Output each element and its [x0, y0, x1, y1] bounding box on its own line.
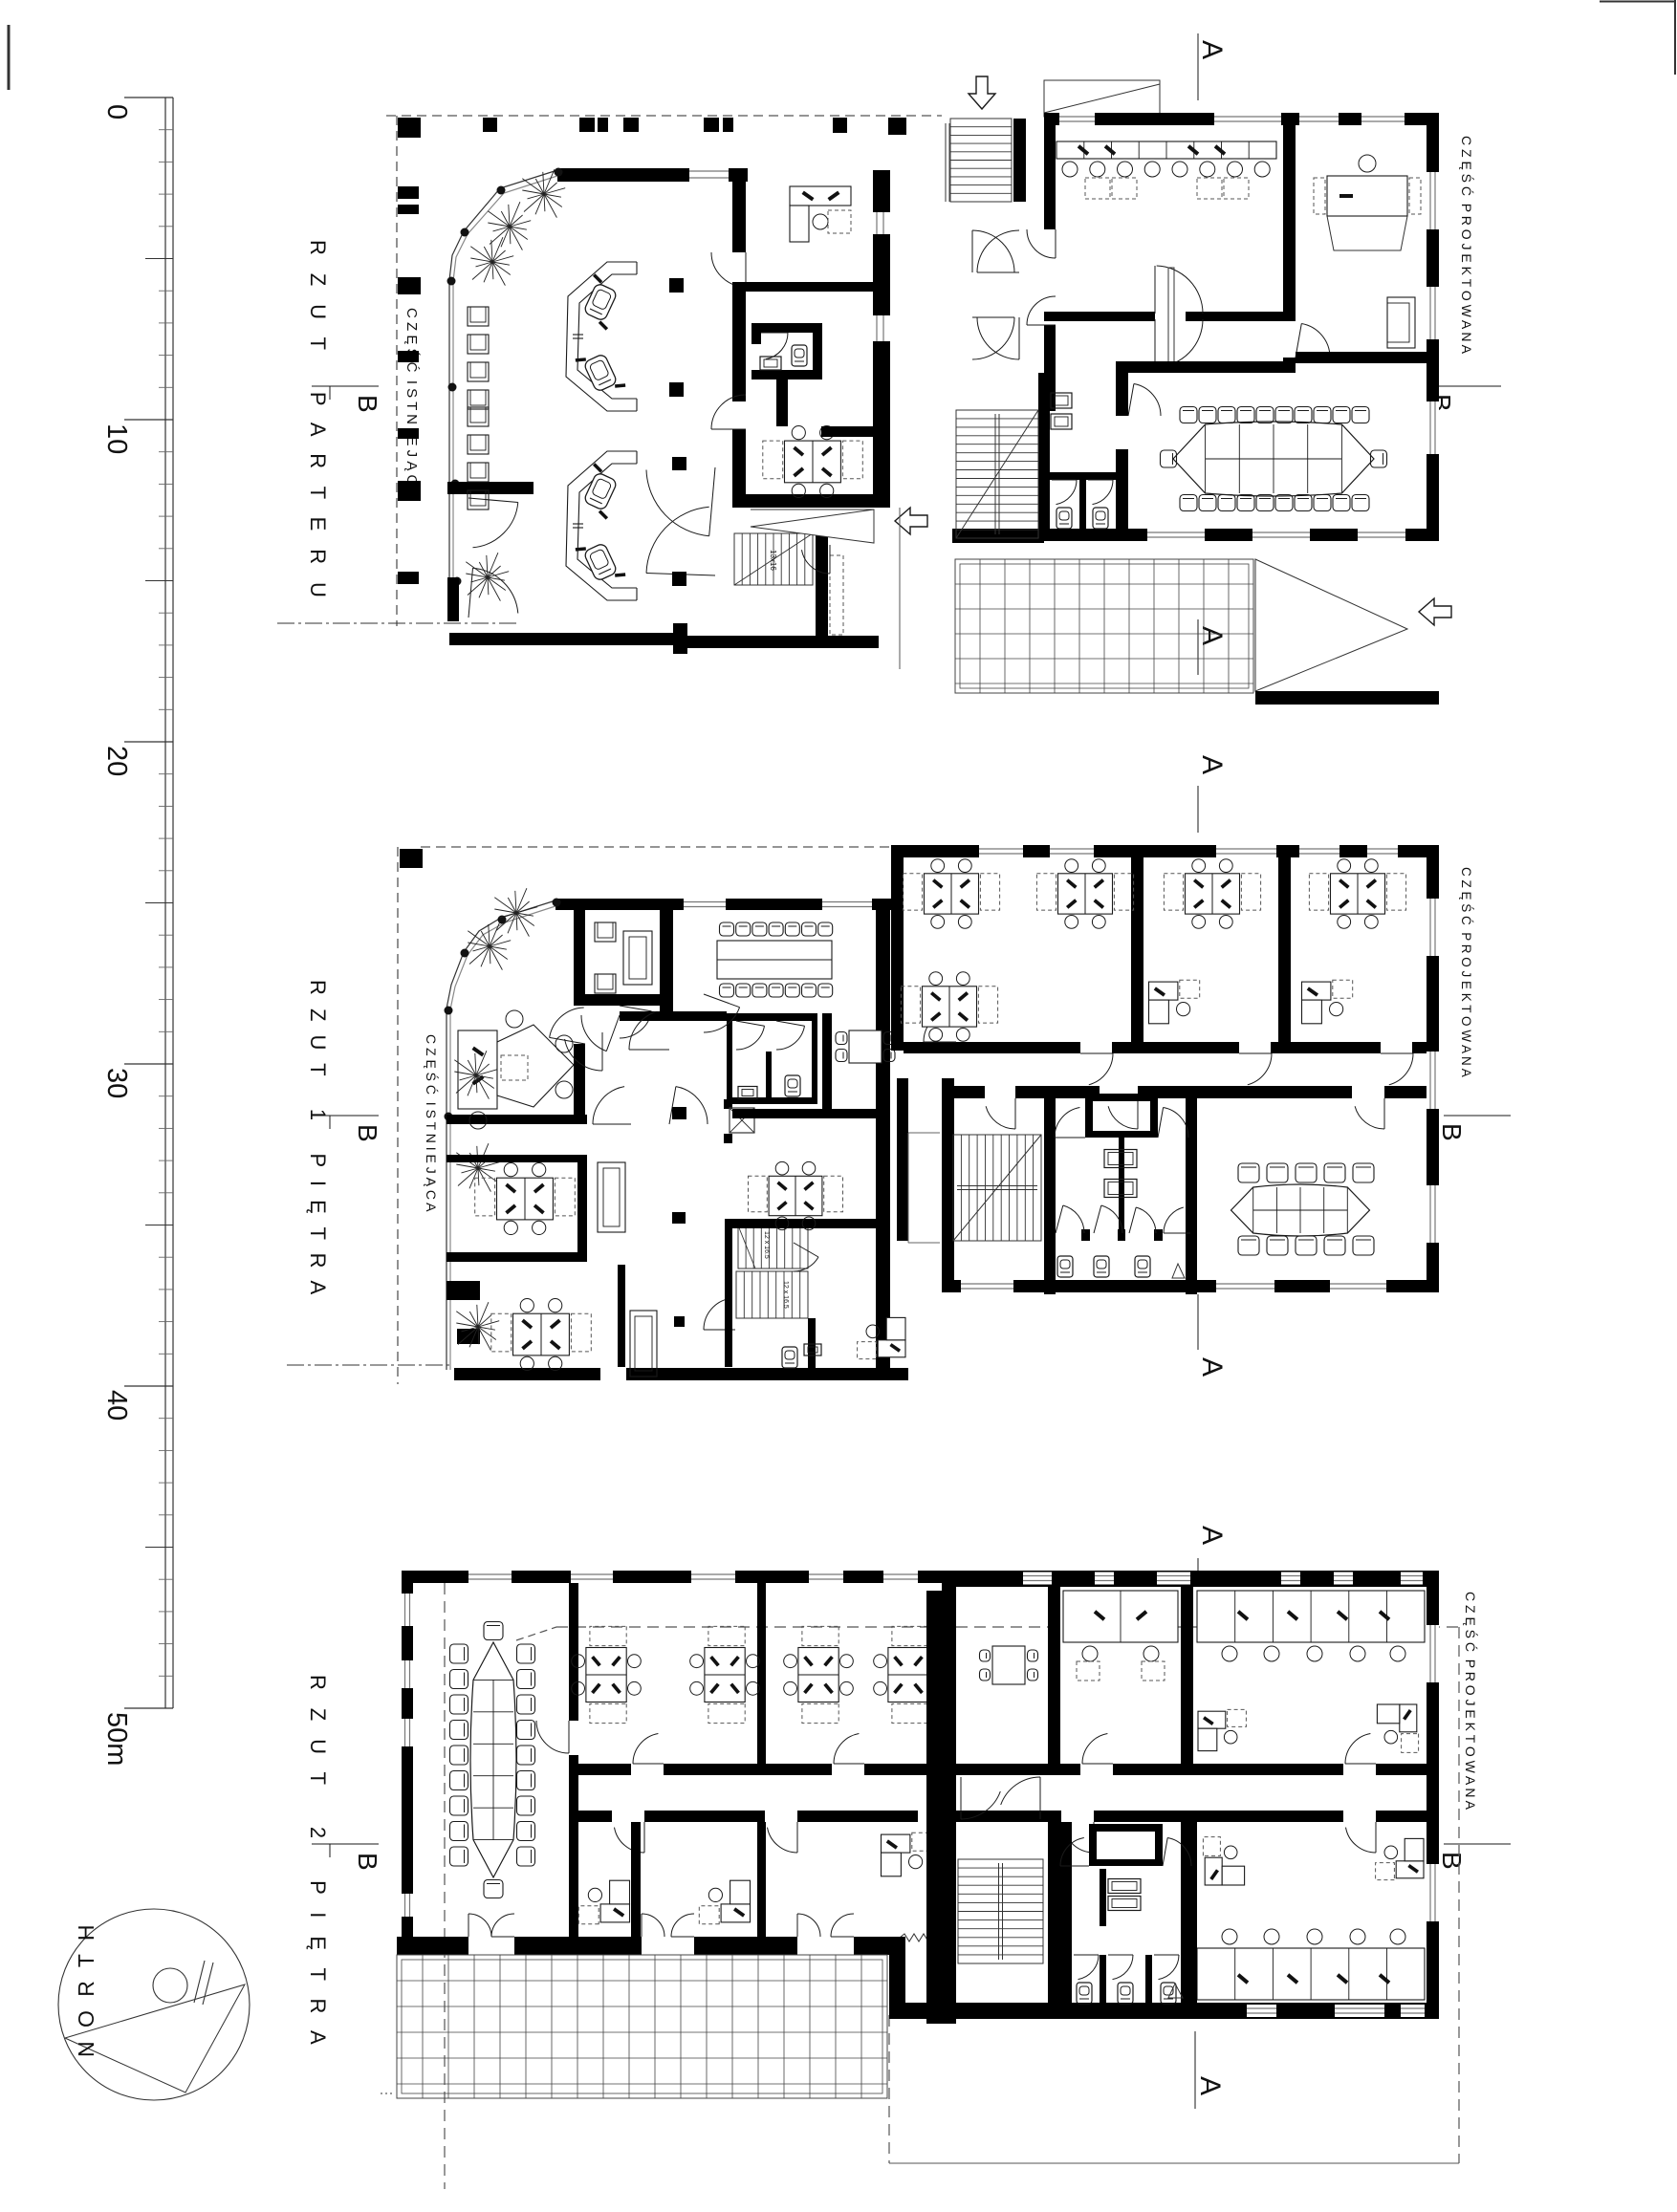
- svg-text:C Z Ę Ś Ć P R O J E K T O W A: C Z Ę Ś Ć P R O J E K T O W A N A: [1459, 867, 1473, 1077]
- svg-text:C Z Ę Ś Ć I S T N I E J Ą C A: C Z Ę Ś Ć I S T N I E J Ą C A: [403, 308, 421, 498]
- svg-text:R Z U T 1 P I Ę T R A: R Z U T 1 P I Ę T R A: [306, 980, 330, 1298]
- svg-text:20: 20: [101, 746, 132, 776]
- svg-text:B: B: [353, 1853, 382, 1871]
- svg-text:13x16: 13x16: [769, 550, 777, 571]
- svg-text:30: 30: [101, 1068, 132, 1098]
- svg-text:A: A: [1194, 2076, 1226, 2095]
- svg-text:0: 0: [101, 104, 132, 119]
- svg-text:R Z U T P A R T E R U: R Z U T P A R T E R U: [306, 240, 330, 603]
- svg-text:R Z U T 2 P I Ę T R A: R Z U T 2 P I Ę T R A: [306, 1675, 330, 2050]
- svg-text:N O R T H: N O R T H: [74, 1921, 98, 2058]
- svg-text:C Z Ę Ś Ć P R O J E K T O W A: C Z Ę Ś Ć P R O J E K T O W A N A: [1463, 1592, 1479, 1811]
- svg-text:B: B: [1437, 1852, 1467, 1870]
- svg-text:B: B: [353, 1124, 382, 1142]
- svg-text:C Z Ę Ś Ć P R O J E K T O W A: C Z Ę Ś Ć P R O J E K T O W A N A: [1459, 136, 1475, 355]
- svg-text:10: 10: [101, 423, 132, 454]
- svg-text:A: A: [1196, 1357, 1228, 1377]
- svg-text:12 x 16.5: 12 x 16.5: [763, 1231, 770, 1259]
- svg-text:C Z Ę Ś Ć I S T N I E J Ą C A: C Z Ę Ś Ć I S T N I E J Ą C A: [424, 1034, 440, 1212]
- svg-text:40: 40: [101, 1390, 132, 1420]
- svg-text:B: B: [353, 395, 382, 413]
- svg-text:12 x 16.5: 12 x 16.5: [782, 1281, 789, 1309]
- svg-text:B: B: [1437, 1123, 1467, 1141]
- svg-text:A: A: [1196, 40, 1228, 59]
- svg-text:A: A: [1196, 755, 1228, 774]
- svg-text:A: A: [1196, 1526, 1228, 1545]
- svg-text:50m: 50m: [101, 1712, 132, 1766]
- svg-text:A: A: [1196, 626, 1228, 645]
